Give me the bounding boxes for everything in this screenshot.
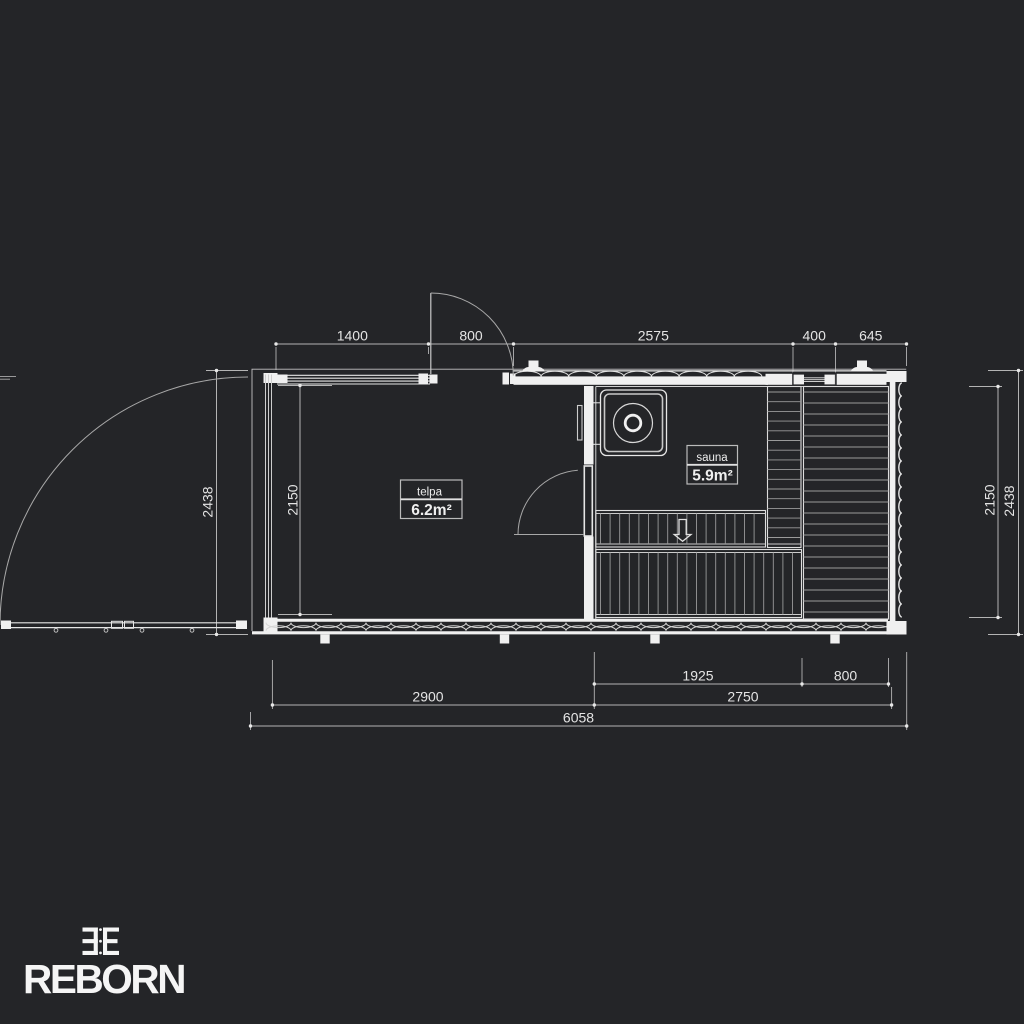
- svg-text:sauna: sauna: [696, 452, 728, 464]
- svg-text:2150: 2150: [982, 484, 998, 515]
- svg-text:2750: 2750: [727, 688, 758, 704]
- svg-text:1925: 1925: [682, 667, 713, 683]
- svg-text:REBORN: REBORN: [23, 956, 184, 1002]
- svg-text:2150: 2150: [285, 484, 301, 515]
- svg-text:5.9m²: 5.9m²: [692, 468, 733, 485]
- svg-text:2575: 2575: [638, 327, 669, 343]
- svg-text:800: 800: [459, 327, 483, 343]
- svg-text:400: 400: [803, 327, 827, 343]
- svg-text:2438: 2438: [200, 486, 216, 517]
- svg-text:2438: 2438: [1001, 485, 1017, 516]
- svg-text:6.2m²: 6.2m²: [411, 502, 452, 519]
- svg-text:telpa: telpa: [417, 487, 443, 499]
- svg-text:645: 645: [859, 327, 883, 343]
- svg-text:1400: 1400: [337, 327, 368, 343]
- svg-text:2900: 2900: [412, 688, 443, 704]
- svg-text:6058: 6058: [563, 709, 594, 725]
- svg-text:800: 800: [834, 667, 858, 683]
